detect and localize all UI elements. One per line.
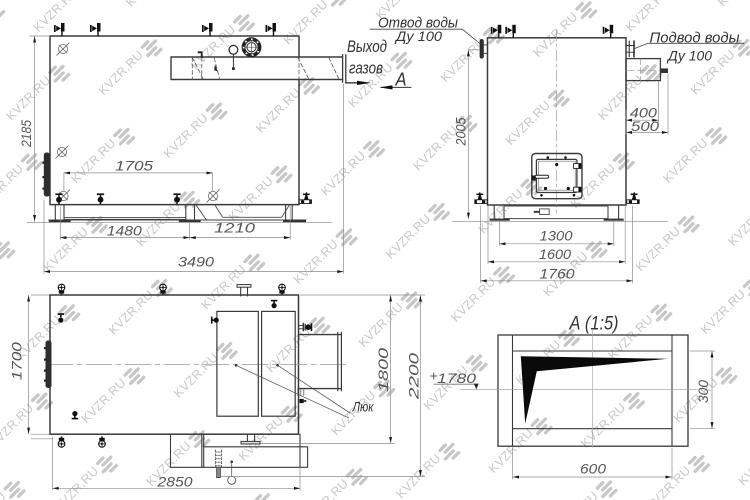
svg-text:Подвод воды: Подвод воды — [650, 31, 740, 47]
svg-text:KVZR.RU: KVZR.RU — [253, 85, 303, 135]
svg-text:KVZR.RU: KVZR.RU — [31, 0, 81, 35]
svg-text:KVZR.RU: KVZR.RU — [503, 98, 553, 148]
svg-text:KVZR.RU: KVZR.RU — [171, 350, 221, 400]
svg-text:500: 500 — [631, 118, 659, 134]
svg-text:KVZR.RU: KVZR.RU — [660, 136, 710, 186]
svg-text:KVZR.RU: KVZR.RU — [68, 136, 118, 186]
svg-text:KVZR.RU: KVZR.RU — [383, 211, 433, 261]
svg-text:1600: 1600 — [539, 246, 571, 262]
svg-text:KVZR.RU: KVZR.RU — [3, 73, 53, 123]
svg-text:1760: 1760 — [540, 266, 575, 282]
svg-text:Ду 100: Ду 100 — [394, 28, 442, 44]
svg-text:KVZR.RU: KVZR.RU — [96, 48, 146, 98]
svg-text:KVZR.RU: KVZR.RU — [291, 237, 341, 287]
svg-text:KVZR.RU: KVZR.RU — [715, 0, 750, 9]
svg-text:KVZR.RU: KVZR.RU — [725, 199, 750, 249]
svg-text:KVZR.RU: KVZR.RU — [551, 489, 601, 500]
svg-text:300: 300 — [695, 380, 711, 403]
svg-text:KVZR.RU: KVZR.RU — [123, 0, 173, 10]
svg-text:1780: 1780 — [437, 370, 476, 386]
svg-text:KVZR.RU: KVZR.RU — [226, 174, 276, 224]
svg-text:1210: 1210 — [214, 220, 255, 236]
svg-text:KVZR.RU: KVZR.RU — [301, 476, 351, 500]
svg-text:2850: 2850 — [156, 474, 192, 490]
svg-text:1700: 1700 — [9, 342, 25, 380]
svg-text:KVZR.RU: KVZR.RU — [643, 463, 693, 500]
svg-text:1480: 1480 — [107, 223, 142, 239]
svg-text:KVZR.RU: KVZR.RU — [0, 489, 9, 500]
svg-text:KVZR.RU: KVZR.RU — [486, 426, 536, 476]
svg-text:2185: 2185 — [18, 120, 34, 148]
svg-text:2005: 2005 — [453, 117, 469, 146]
svg-text:газов: газов — [349, 60, 383, 78]
svg-text:KVZR.RU: KVZR.RU — [41, 224, 91, 274]
svg-text:KVZR.RU: KVZR.RU — [51, 464, 101, 500]
svg-text:KVZR.RU: KVZR.RU — [0, 401, 36, 451]
svg-text:Ду 100: Ду 100 — [666, 48, 712, 64]
svg-text:2200: 2200 — [406, 353, 422, 401]
svg-text:KVZR.RU: KVZR.RU — [698, 287, 748, 337]
svg-text:Выход: Выход — [347, 38, 387, 56]
svg-text:KVZR.RU: KVZR.RU — [356, 300, 406, 350]
svg-text:KVZR.RU: KVZR.RU — [79, 376, 129, 426]
svg-text:KVZR.RU: KVZR.RU — [633, 224, 683, 274]
svg-text:KVZR.RU: KVZR.RU — [578, 400, 628, 450]
svg-text:KVZR.RU: KVZR.RU — [236, 413, 286, 463]
svg-text:А: А — [395, 69, 407, 89]
svg-text:KVZR.RU: KVZR.RU — [736, 438, 750, 488]
svg-text:KVZR.RU: KVZR.RU — [0, 161, 26, 211]
svg-text:1705: 1705 — [115, 157, 153, 173]
svg-text:KVZR.RU: KVZR.RU — [161, 111, 211, 161]
svg-text:KVZR.RU: KVZR.RU — [623, 0, 673, 34]
svg-text:KVZR.RU: KVZR.RU — [281, 0, 331, 47]
svg-text:3490: 3490 — [178, 254, 214, 270]
svg-text:А (1:5): А (1:5) — [569, 314, 619, 335]
svg-text:Люк: Люк — [352, 400, 374, 415]
svg-text:+: + — [429, 368, 437, 384]
svg-text:KVZR.RU: KVZR.RU — [393, 451, 443, 500]
svg-text:KVZR.RU: KVZR.RU — [263, 325, 313, 375]
svg-text:600: 600 — [580, 461, 606, 477]
svg-text:1300: 1300 — [540, 227, 573, 243]
svg-text:KVZR.RU: KVZR.RU — [530, 10, 580, 60]
svg-text:KVZR.RU: KVZR.RU — [448, 274, 498, 324]
svg-text:1800: 1800 — [375, 348, 391, 392]
